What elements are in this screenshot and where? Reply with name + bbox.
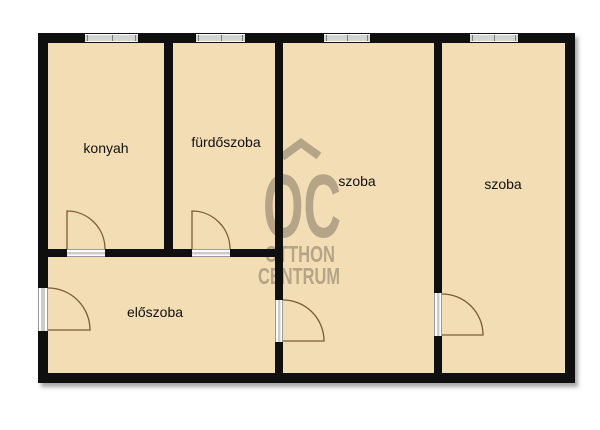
- window-tick: [135, 35, 136, 41]
- doorframe-bathroom: [192, 249, 230, 257]
- doorframe-room1-room2: [434, 293, 442, 336]
- wall-hallway-top-b: [105, 249, 192, 257]
- window-kitchen: [85, 34, 138, 42]
- window-tick: [326, 35, 327, 41]
- window-bathroom: [196, 34, 245, 42]
- wall-left-lower: [38, 331, 48, 383]
- room-label-bathroom: fürdőszoba: [191, 134, 260, 150]
- room-label-room2: szoba: [484, 176, 521, 192]
- window-tick: [221, 35, 222, 41]
- window-tick: [112, 35, 113, 41]
- wall-room1-room2-upper: [434, 43, 442, 293]
- window-tick: [347, 35, 348, 41]
- doorframe-entrance: [38, 288, 48, 331]
- window-tick: [494, 35, 495, 41]
- wall-room1-room2-lower: [434, 336, 442, 373]
- window-tick: [198, 35, 199, 41]
- wall-left-upper: [38, 33, 48, 288]
- room-label-hallway: előszoba: [127, 304, 183, 320]
- window-tick: [367, 35, 368, 41]
- roof-icon: [282, 143, 319, 157]
- window-tick: [242, 35, 243, 41]
- otthon-centrum-watermark: OC OTTHON CENTRUM: [253, 133, 393, 323]
- doorframe-hallway-room1: [275, 300, 283, 342]
- wall-hallway-top-a: [48, 249, 67, 257]
- watermark-line2: CENTRUM: [258, 263, 340, 289]
- wall-bathroom-room1-upper: [275, 43, 283, 300]
- room-label-room1: szoba: [338, 173, 375, 189]
- window-room2: [470, 34, 518, 42]
- wall-kitchen-bathroom: [164, 43, 173, 249]
- window-tick: [472, 35, 473, 41]
- wall-bathroom-room1-lower: [275, 342, 283, 373]
- wall-bottom: [38, 373, 575, 383]
- window-tick: [87, 35, 88, 41]
- room-label-kitchen: konyah: [83, 140, 128, 156]
- doorframe-kitchen: [67, 249, 105, 257]
- floor-plan: OC OTTHON CENTRUM: [38, 33, 575, 383]
- wall-right: [565, 33, 575, 383]
- window-room1: [324, 34, 370, 42]
- window-tick: [515, 35, 516, 41]
